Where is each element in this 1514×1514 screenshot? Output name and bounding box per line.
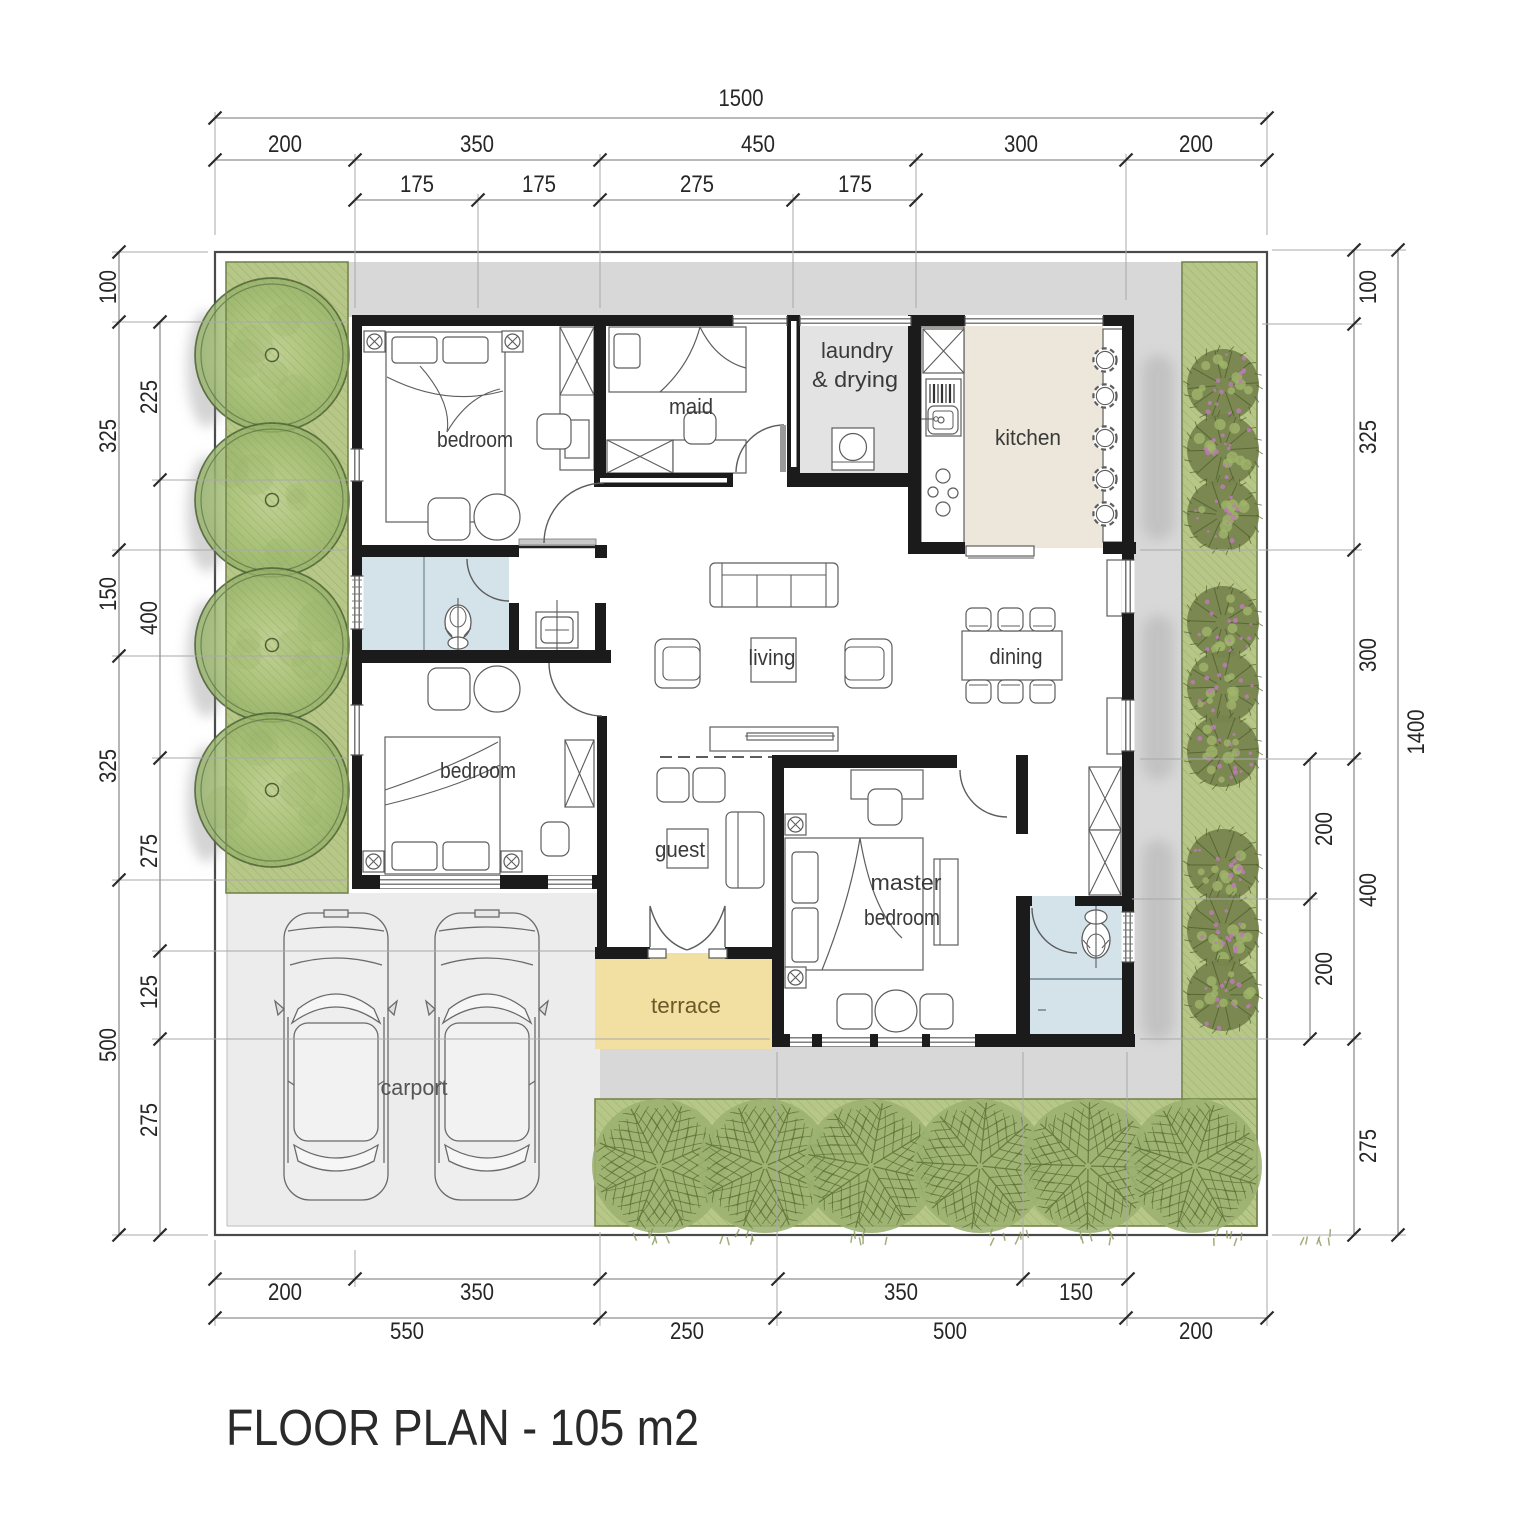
svg-text:275: 275 bbox=[136, 1103, 163, 1137]
svg-text:550: 550 bbox=[390, 1318, 424, 1345]
svg-text:bedroom: bedroom bbox=[864, 905, 940, 930]
svg-text:275: 275 bbox=[1355, 1129, 1382, 1163]
svg-text:guest: guest bbox=[655, 837, 705, 862]
svg-text:200: 200 bbox=[1179, 1318, 1213, 1345]
svg-text:laundry: laundry bbox=[821, 338, 893, 363]
svg-text:225: 225 bbox=[136, 380, 163, 414]
svg-text:FLOOR PLAN - 105 m2: FLOOR PLAN - 105 m2 bbox=[226, 1399, 699, 1456]
svg-text:400: 400 bbox=[1355, 873, 1382, 907]
svg-text:400: 400 bbox=[136, 601, 163, 635]
svg-text:kitchen: kitchen bbox=[995, 425, 1061, 450]
svg-text:100: 100 bbox=[1355, 270, 1382, 304]
svg-text:living: living bbox=[749, 645, 796, 670]
svg-text:175: 175 bbox=[400, 171, 434, 198]
svg-text:350: 350 bbox=[884, 1279, 918, 1306]
svg-text:1500: 1500 bbox=[719, 85, 764, 112]
svg-text:200: 200 bbox=[1179, 131, 1213, 158]
svg-text:maid: maid bbox=[669, 394, 713, 419]
svg-text:125: 125 bbox=[136, 975, 163, 1009]
svg-text:carport: carport bbox=[381, 1075, 448, 1100]
svg-text:master: master bbox=[871, 870, 942, 895]
svg-text:100: 100 bbox=[95, 270, 122, 304]
svg-text:& drying: & drying bbox=[812, 367, 898, 392]
svg-text:350: 350 bbox=[460, 131, 494, 158]
svg-text:300: 300 bbox=[1004, 131, 1038, 158]
svg-text:325: 325 bbox=[95, 749, 122, 783]
svg-text:450: 450 bbox=[741, 131, 775, 158]
svg-text:bedroom: bedroom bbox=[437, 427, 513, 452]
svg-text:350: 350 bbox=[460, 1279, 494, 1306]
svg-text:500: 500 bbox=[933, 1318, 967, 1345]
svg-text:150: 150 bbox=[1059, 1279, 1093, 1306]
svg-text:bedroom: bedroom bbox=[440, 758, 516, 783]
svg-text:200: 200 bbox=[268, 1279, 302, 1306]
svg-text:175: 175 bbox=[522, 171, 556, 198]
svg-text:300: 300 bbox=[1355, 638, 1382, 672]
svg-text:250: 250 bbox=[670, 1318, 704, 1345]
svg-text:dining: dining bbox=[990, 644, 1043, 669]
svg-text:terrace: terrace bbox=[651, 993, 721, 1018]
svg-text:325: 325 bbox=[1355, 420, 1382, 454]
svg-text:200: 200 bbox=[1311, 812, 1338, 846]
svg-text:200: 200 bbox=[268, 131, 302, 158]
svg-text:1400: 1400 bbox=[1403, 710, 1430, 755]
svg-text:275: 275 bbox=[136, 834, 163, 868]
svg-text:150: 150 bbox=[95, 577, 122, 611]
svg-text:175: 175 bbox=[838, 171, 872, 198]
svg-text:500: 500 bbox=[95, 1028, 122, 1062]
svg-text:275: 275 bbox=[680, 171, 714, 198]
svg-text:200: 200 bbox=[1311, 952, 1338, 986]
svg-text:325: 325 bbox=[95, 419, 122, 453]
